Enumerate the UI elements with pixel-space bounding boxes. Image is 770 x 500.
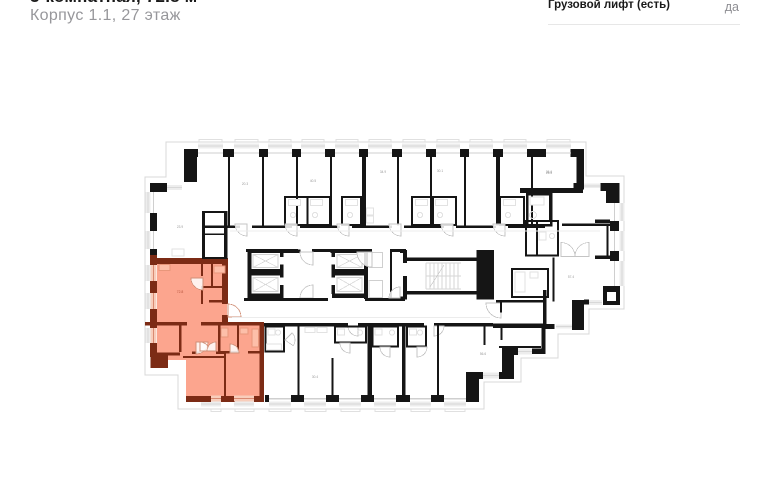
svg-text:26.6: 26.6	[546, 171, 552, 175]
svg-text:23.9: 23.9	[177, 225, 183, 229]
svg-text:34.9: 34.9	[380, 170, 386, 174]
svg-text:57.4: 57.4	[568, 275, 574, 279]
svg-text:30.1: 30.1	[437, 169, 443, 173]
svg-text:72.8: 72.8	[177, 290, 184, 294]
svg-text:40.5: 40.5	[310, 179, 316, 183]
svg-text:30.4: 30.4	[312, 375, 318, 379]
svg-text:56.6: 56.6	[480, 352, 486, 356]
svg-text:20.3: 20.3	[242, 182, 248, 186]
